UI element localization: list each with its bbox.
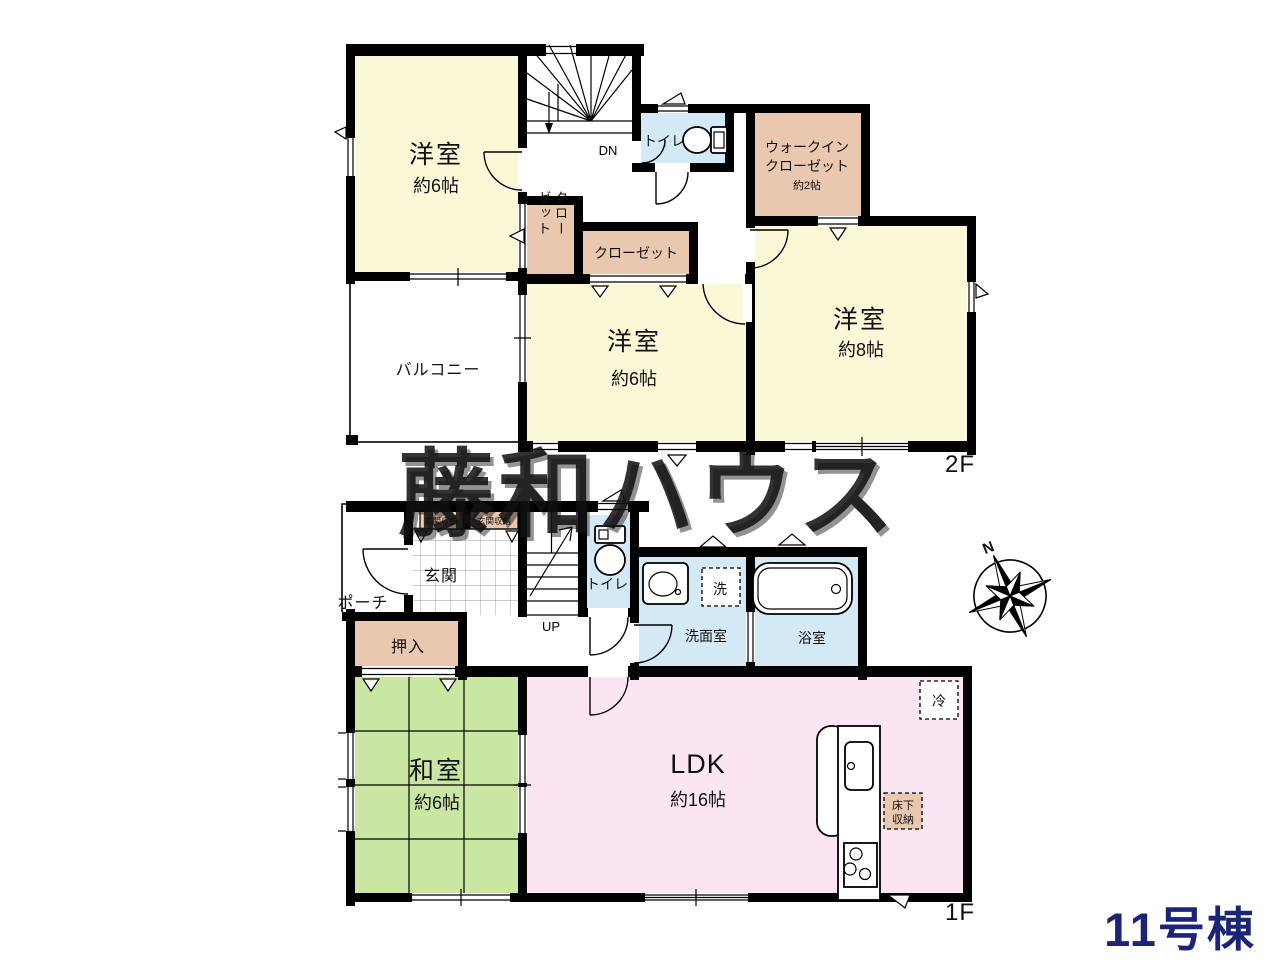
label-fridge: 冷 — [932, 693, 946, 709]
door-arc — [655, 163, 690, 204]
door-arc — [588, 608, 628, 655]
label-japanese-room-name: 和室 — [409, 757, 463, 785]
floor-2f: 洋室 約6帖 洋室 約6帖 洋室 約8帖 ウォークイン クローゼット 約2帖 ク… — [335, 44, 988, 478]
label-oshiire: 押入 — [391, 638, 425, 656]
label-ldk-name: LDK — [670, 749, 726, 779]
label-wic-line1: ウォークイン — [765, 139, 849, 155]
label-underfloor-1: 床下 — [892, 798, 914, 812]
wall — [963, 666, 972, 902]
folding-door — [746, 612, 755, 662]
wall — [574, 222, 698, 231]
label-toilet-2f: トイレ — [643, 133, 685, 149]
compass-rose: N — [946, 523, 1067, 653]
compass-north-label: N — [980, 538, 996, 558]
label-floor-2f: 2F — [945, 451, 975, 478]
room-bedroom-mid — [527, 284, 746, 441]
label-bedroom-mid-size: 約6帖 — [611, 369, 657, 389]
bathtub-icon — [753, 563, 852, 614]
label-bedroom-e-size: 約8帖 — [838, 340, 884, 360]
watermark-text: 藤和ハウス — [398, 442, 898, 549]
label-closet-small-col1: クロー — [553, 191, 568, 238]
label-bedroom-nw-size: 約6帖 — [413, 176, 459, 196]
wall — [858, 547, 867, 680]
wall — [342, 612, 467, 621]
label-stairs-dn: DN — [599, 143, 618, 158]
label-laundry: 洗 — [713, 581, 727, 597]
room-ldk — [527, 677, 963, 893]
label-underfloor-2: 収納 — [892, 813, 914, 826]
balcony-outline — [350, 277, 521, 442]
label-stairs-up: UP — [542, 619, 560, 634]
label-wic-size: 約2帖 — [793, 178, 821, 192]
label-entry: 玄関 — [424, 567, 458, 585]
window — [967, 282, 988, 312]
washstand-icon — [643, 563, 688, 604]
window — [658, 93, 688, 113]
label-bedroom-mid-name: 洋室 — [607, 328, 661, 356]
label-balcony: バルコニー — [396, 362, 481, 379]
wall — [574, 196, 583, 284]
label-washroom: 洗面室 — [685, 628, 727, 644]
label-toilet-1f: トイレ — [586, 576, 628, 592]
label-ldk-size: 約16帖 — [670, 790, 726, 810]
label-porch: ポーチ — [337, 594, 388, 612]
wall — [346, 435, 358, 445]
label-closet-wide: クローゼット — [594, 245, 678, 261]
wall — [861, 104, 870, 221]
window — [338, 787, 355, 831]
building-number-label: 11号棟 — [1104, 903, 1256, 956]
floor-plan-canvas: 洋室 約6帖 洋室 約6帖 洋室 約8帖 ウォークイン クローゼット 約2帖 ク… — [0, 0, 1280, 960]
label-closet-small-col2: ゼット — [536, 191, 552, 238]
wall — [346, 44, 644, 56]
label-bedroom-e-name: 洋室 — [833, 306, 887, 334]
label-floor-1f: 1F — [945, 899, 975, 926]
wall — [518, 666, 527, 902]
stairs-2f — [527, 45, 632, 134]
toilet-2f-icon — [683, 127, 727, 153]
label-wic-line2: クローゼット — [765, 158, 849, 174]
floor-1f: ポーチ 玄関 玄関収納 玄関収納 押入 和室 約6帖 UP トイレ 洗面室 洗 … — [337, 490, 975, 926]
watermark: 藤和ハウス 藤和ハウス — [398, 442, 902, 553]
wall — [746, 216, 976, 226]
label-bathroom: 浴室 — [798, 630, 826, 646]
sliding-partition — [518, 735, 527, 783]
label-bedroom-nw-name: 洋室 — [409, 141, 463, 169]
wall — [967, 216, 976, 455]
floor-plan-page: 洋室 約6帖 洋室 約6帖 洋室 約8帖 ウォークイン クローゼット 約2帖 ク… — [0, 0, 1280, 960]
window — [338, 733, 355, 779]
label-japanese-room-size: 約6帖 — [414, 793, 460, 813]
